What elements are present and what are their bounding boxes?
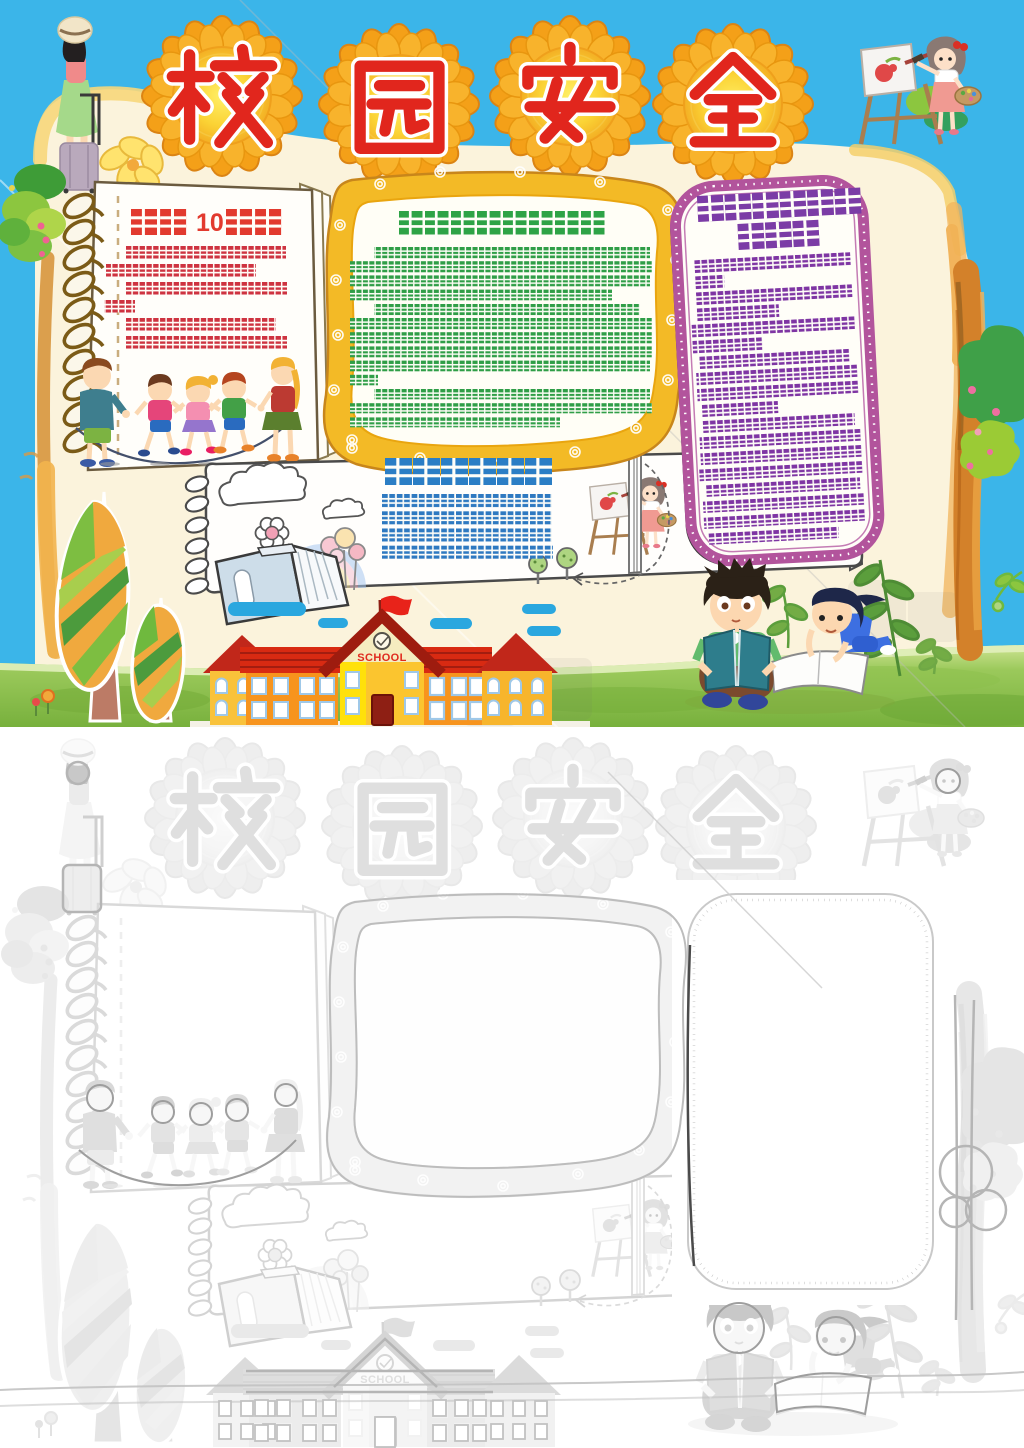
svg-text:10: 10 <box>196 209 224 237</box>
svg-text:SCHOOL: SCHOOL <box>357 652 406 664</box>
